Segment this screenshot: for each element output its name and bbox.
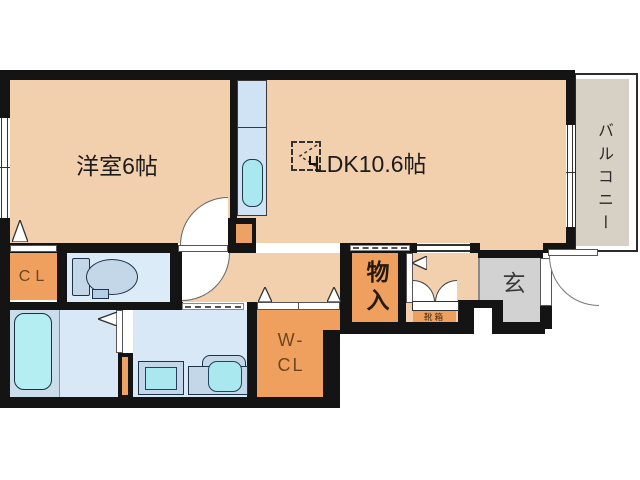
wall-door-block-inset [236,224,252,243]
storage-door-marker [412,256,427,270]
wall-toilet-right [170,250,182,303]
wall-storage-right [398,253,406,322]
balcony-window [566,125,575,227]
washroom-door-track [182,303,244,310]
wall-wcl-left [247,302,257,397]
shoe-cabinet-counter [412,301,459,311]
wall-bathroom-top [0,302,183,310]
ldk-label: LDK10.6帖 [314,148,509,176]
wcl-label-line2: CL [277,355,304,375]
floor-plan: 洋室6帖 LDK10.6帖 バルコニー CL 物入 W- CL 玄 靴箱 [0,0,640,480]
wall-ldk-right-upper [566,80,575,125]
wall-bottom-left [0,397,340,408]
wall-entry-bottom [340,322,545,334]
wall-genkan-top [478,250,543,258]
wall-notch [474,308,492,334]
bedroom-door-bar [178,245,228,252]
kitchen-sink [242,159,263,207]
kitchen-counter-divider [238,127,266,128]
genkan-floor-lower [503,302,543,322]
wcl-label: W- CL [262,328,320,382]
balcony-label: バルコニー [591,100,615,258]
wall-top [2,70,575,80]
storage-label: 物入 [358,256,394,320]
wall-wcl-right [323,330,340,408]
bathroom-door-marker [98,312,117,326]
front-door-swing [549,256,599,306]
washing-machine-drum [145,367,177,390]
wcl-door-track [257,302,340,310]
bathtub [14,313,52,390]
bedroom-window [0,118,10,218]
storage-door-track [350,245,410,251]
bathroom-door [116,310,123,353]
closet-sliding-door [10,245,57,252]
wall-closet-right [57,243,67,310]
wcl-door-marker-2 [327,287,341,302]
vanity-sink [208,361,242,392]
bedroom-label: 洋室6帖 [52,150,182,178]
closet-label: CL [13,266,55,288]
genkan-label: 玄 [498,265,530,297]
wcl-label-line1: W- [278,330,305,350]
wall-bedroom-kitchen [230,80,237,220]
entry-window [417,243,470,253]
toilet-flush-unit [92,289,109,299]
wall-porch-stub [540,305,552,329]
wall-bath-door-inset [122,357,128,395]
closet-door-marker [12,220,28,242]
wcl-door-marker-1 [258,287,272,302]
wall-storage-left [340,243,352,334]
wall-left-upper [0,70,10,118]
genkan-gap-floor [480,243,543,250]
shoe-box-label: 靴箱 [413,311,456,322]
